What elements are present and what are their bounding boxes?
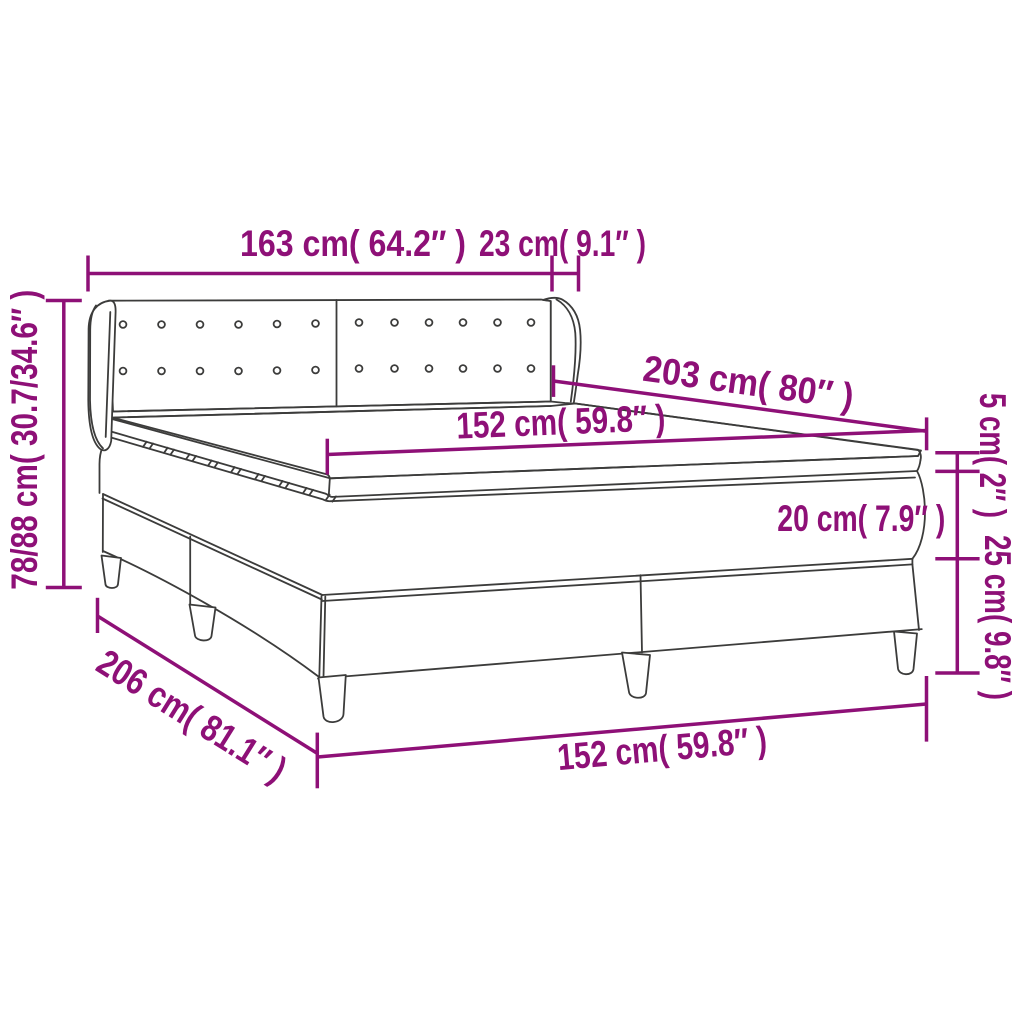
svg-text:78/88 cm( 30.7/34.6″ ): 78/88 cm( 30.7/34.6″ ) xyxy=(4,290,45,590)
svg-text:23 cm( 9.1″ ): 23 cm( 9.1″ ) xyxy=(479,223,646,264)
svg-text:25 cm( 9.8″ ): 25 cm( 9.8″ ) xyxy=(977,535,1018,700)
svg-text:20 cm( 7.9″ ): 20 cm( 7.9″ ) xyxy=(777,498,945,539)
svg-text:163 cm( 64.2″ ): 163 cm( 64.2″ ) xyxy=(240,223,466,264)
svg-text:152 cm( 59.8″ ): 152 cm( 59.8″ ) xyxy=(456,397,666,446)
svg-text:5 cm( 2″ ): 5 cm( 2″ ) xyxy=(972,393,1013,518)
